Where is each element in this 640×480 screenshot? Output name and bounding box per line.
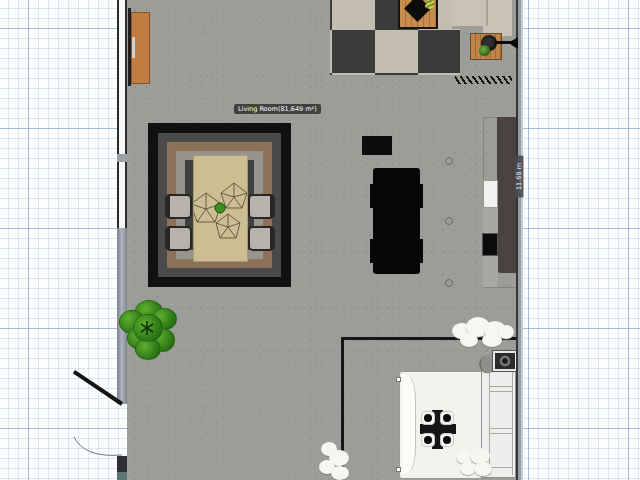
white-cabinet[interactable] bbox=[483, 180, 498, 208]
cloud-decor-3[interactable] bbox=[456, 448, 494, 480]
black-cabinet[interactable] bbox=[482, 233, 498, 256]
cloud-decor-2[interactable] bbox=[319, 442, 353, 480]
plate-4 bbox=[440, 433, 454, 447]
dining-chair-4[interactable] bbox=[248, 226, 275, 251]
cloud-decor-1[interactable] bbox=[452, 317, 516, 350]
floor-plan-canvas: 11.68 m Living Room(81,649 m²) bbox=[0, 0, 640, 480]
branch-icon bbox=[139, 320, 155, 336]
door-swing-arc-icon bbox=[60, 400, 130, 462]
island-armrest-top bbox=[370, 184, 423, 208]
room-label: Living Room(81,649 m²) bbox=[234, 104, 321, 114]
bed-corner-handle-bottom[interactable] bbox=[396, 467, 401, 472]
blanket-fold bbox=[402, 374, 416, 474]
dining-chair-2[interactable] bbox=[165, 226, 192, 251]
plate-2 bbox=[440, 411, 454, 425]
sideboard-handle-icon bbox=[132, 37, 135, 58]
lamp-bulb-icon bbox=[499, 355, 511, 367]
kitchen-tile-floor[interactable] bbox=[330, 0, 460, 75]
wall-right[interactable] bbox=[516, 0, 523, 480]
bush-plant[interactable] bbox=[119, 300, 175, 358]
dining-table[interactable] bbox=[193, 155, 248, 262]
hatch-marker bbox=[455, 76, 512, 84]
pan-handle-icon bbox=[495, 41, 513, 44]
cutting-board[interactable] bbox=[398, 0, 438, 29]
dining-chair-3[interactable] bbox=[248, 194, 275, 219]
dining-chair-1[interactable] bbox=[165, 194, 192, 219]
window-left[interactable] bbox=[117, 0, 127, 228]
gray-cabinet-2[interactable] bbox=[483, 256, 498, 287]
window-mullion bbox=[117, 154, 127, 162]
plate-3 bbox=[421, 433, 435, 447]
placemat-wireframes-icon bbox=[194, 156, 247, 261]
radiator-cap bbox=[117, 472, 127, 480]
gray-cabinet-1[interactable] bbox=[483, 208, 498, 233]
small-plant[interactable] bbox=[479, 45, 490, 56]
wall-dimension-label: 11.68 m bbox=[515, 156, 524, 198]
sofa-seam bbox=[486, 0, 488, 26]
island-armrest-bottom bbox=[370, 239, 423, 263]
bed-corner-handle-top[interactable] bbox=[396, 377, 401, 382]
floor-socket-3[interactable] bbox=[445, 279, 453, 287]
wall-lamp[interactable] bbox=[493, 351, 517, 371]
floor-socket-2[interactable] bbox=[445, 217, 453, 225]
floor-socket-1[interactable] bbox=[445, 157, 453, 165]
sideboard-back-rail bbox=[128, 8, 131, 86]
black-console[interactable] bbox=[362, 136, 392, 155]
plate-1 bbox=[421, 411, 435, 425]
